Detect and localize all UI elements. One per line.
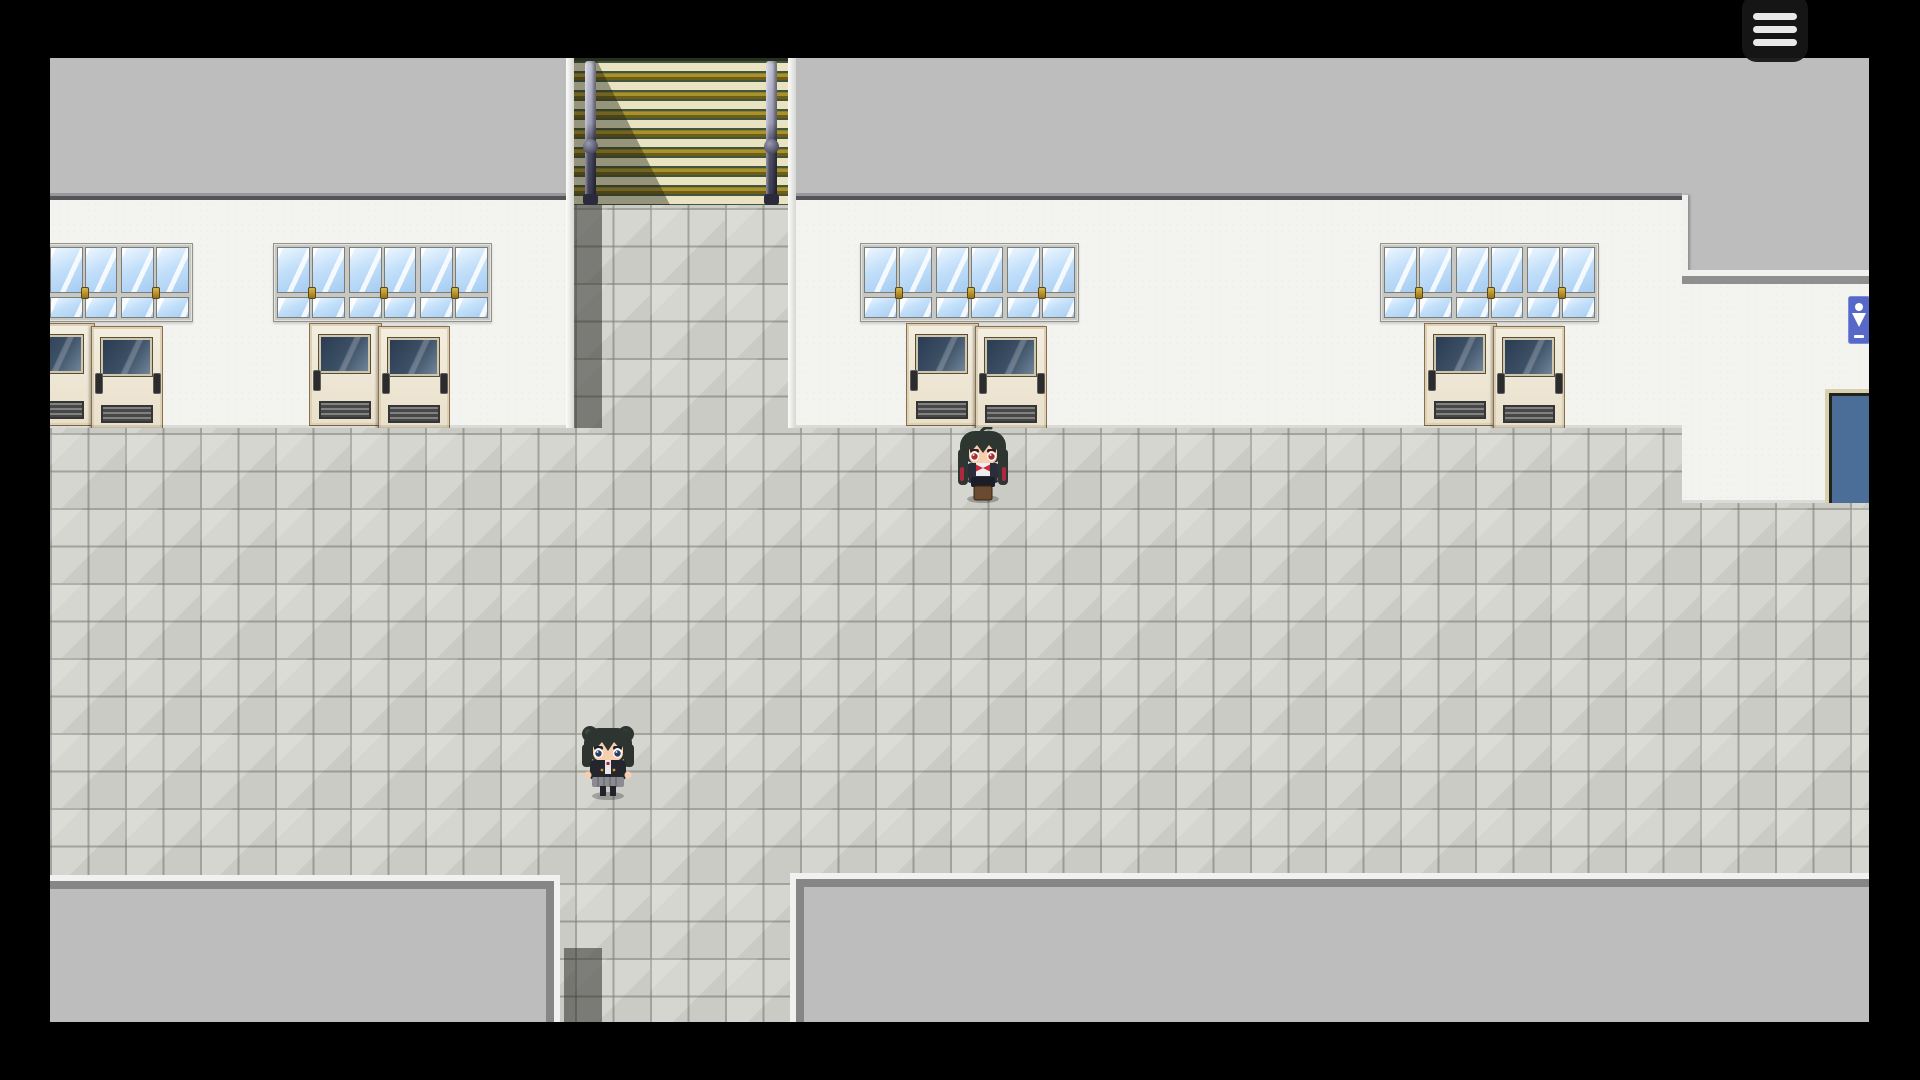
- door-handle: [1037, 373, 1045, 394]
- classroom-door-pair-4[interactable]: [1424, 323, 1563, 428]
- stair-rail-right: [766, 61, 777, 199]
- sign-label-bar: [1854, 335, 1864, 338]
- window-latch-icon: [967, 287, 975, 299]
- hallway-wall: [50, 200, 566, 428]
- window-band-3: [860, 243, 1079, 322]
- door-window: [388, 338, 439, 376]
- person-icon: [1855, 303, 1863, 311]
- door-vent: [50, 401, 84, 419]
- roof-right: [796, 58, 1688, 193]
- door-handle: [440, 373, 448, 394]
- window-latch-icon: [451, 287, 459, 299]
- sliding-door-right[interactable]: [975, 326, 1047, 428]
- sliding-door-left[interactable]: [309, 323, 382, 426]
- door-vent: [101, 405, 153, 423]
- window-unit: [276, 246, 346, 319]
- window-unit: [419, 246, 489, 319]
- door-handle: [1428, 370, 1436, 391]
- stair-rail-left: [585, 61, 596, 199]
- roof-edge: [50, 193, 566, 200]
- npc-girl-red-eyes[interactable]: [954, 427, 1012, 503]
- window-latch-icon: [1487, 287, 1495, 299]
- door-window: [50, 335, 83, 373]
- gray-room-bottom-left: [50, 875, 560, 1022]
- door-vent: [916, 401, 968, 419]
- wall-block-left: [50, 58, 566, 428]
- window-band-4: [1380, 243, 1599, 322]
- menu-button[interactable]: [1742, 0, 1808, 62]
- sliding-door-left[interactable]: [50, 323, 95, 426]
- npc-girl-twin-buns[interactable]: [576, 722, 640, 800]
- door-window: [1434, 335, 1485, 373]
- door-vent: [388, 405, 440, 423]
- window-unit: [1455, 246, 1525, 319]
- stairwell-trim-right: [788, 58, 796, 428]
- window-unit: [1383, 246, 1453, 319]
- blue-door[interactable]: [1825, 389, 1869, 503]
- staircase-up[interactable]: [574, 58, 788, 205]
- window-latch-icon: [895, 287, 903, 299]
- roof-edge: [796, 193, 1688, 200]
- door-handle: [1555, 373, 1563, 394]
- hallway-wall: [796, 200, 1688, 428]
- window-latch-icon: [1415, 287, 1423, 299]
- door-window: [1503, 338, 1554, 376]
- window-latch-icon: [1558, 287, 1566, 299]
- door-handle: [1497, 373, 1505, 394]
- window-unit: [348, 246, 418, 319]
- door-window: [319, 335, 370, 373]
- window-unit: [863, 246, 933, 319]
- door-window: [916, 335, 967, 373]
- roof-left: [50, 58, 566, 193]
- window-band-2: [273, 243, 492, 322]
- window-unit: [1526, 246, 1596, 319]
- window-unit: [935, 246, 1005, 319]
- bottom-corridor-shadow: [564, 948, 602, 1022]
- door-window: [101, 338, 152, 376]
- door-vent: [1503, 405, 1555, 423]
- window-band-1: [50, 243, 193, 322]
- window-latch-icon: [1038, 287, 1046, 299]
- door-window: [985, 338, 1036, 376]
- roof-shadow-band: [1682, 276, 1869, 284]
- sliding-door-left[interactable]: [906, 323, 979, 426]
- stairwell-trim-left: [566, 58, 574, 428]
- sliding-door-left[interactable]: [1424, 323, 1497, 426]
- game-viewport[interactable]: [50, 58, 1869, 1022]
- window-latch-icon: [308, 287, 316, 299]
- window-unit: [120, 246, 190, 319]
- classroom-door-pair-2[interactable]: [309, 323, 448, 428]
- right-corridor-section: [1682, 58, 1869, 503]
- window-unit: [1006, 246, 1076, 319]
- door-handle: [382, 373, 390, 394]
- restroom-sign: [1848, 296, 1869, 344]
- sliding-door-right[interactable]: [378, 326, 450, 428]
- window-unit: [50, 246, 118, 319]
- door-vent: [319, 401, 371, 419]
- window-latch-icon: [81, 287, 89, 299]
- window-latch-icon: [380, 287, 388, 299]
- sliding-door-right[interactable]: [91, 326, 163, 428]
- wall-corner-trim: [1682, 195, 1688, 271]
- gray-room-bottom-right: [790, 873, 1869, 1022]
- door-handle: [313, 370, 321, 391]
- door-vent: [1434, 401, 1486, 419]
- hamburger-menu-icon: [1753, 13, 1797, 20]
- wall-block-right: [796, 58, 1688, 428]
- classroom-door-pair-1[interactable]: [50, 323, 161, 428]
- door-handle: [979, 373, 987, 394]
- door-vent: [985, 405, 1037, 423]
- window-latch-icon: [152, 287, 160, 299]
- door-handle: [95, 373, 103, 394]
- sliding-door-right[interactable]: [1493, 326, 1565, 428]
- roof-far-right: [1682, 58, 1869, 270]
- classroom-door-pair-3[interactable]: [906, 323, 1045, 428]
- door-handle: [153, 373, 161, 394]
- door-handle: [910, 370, 918, 391]
